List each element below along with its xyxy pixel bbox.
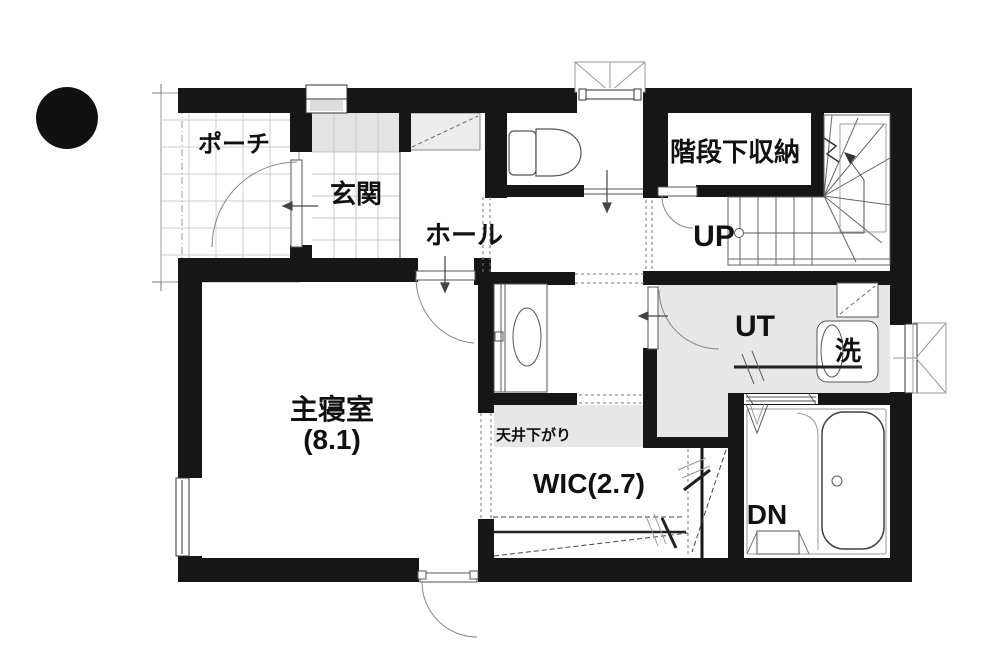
floor-plan-page: ポーチ 玄関 ホール 階段下収納 UP UT 洗 主寝室 (8.1) 天井下がり… [0, 0, 999, 666]
porch-label: ポーチ [198, 130, 270, 158]
shoe-cabinet [410, 113, 480, 150]
master-bedroom-label: 主寝室 [290, 393, 374, 425]
storage-door [658, 187, 697, 228]
floor-badge-letter: F [74, 106, 90, 136]
dn-label: DN [747, 499, 787, 530]
utility-label: UT [735, 310, 775, 343]
stair-start-post [735, 229, 744, 238]
bath-step [757, 531, 799, 554]
washbasin-vanity [494, 284, 547, 392]
laundry-label: 洗 [835, 336, 861, 366]
floor-badge: 1 F [36, 87, 98, 149]
floor-badge-number: 1 [46, 93, 72, 145]
toilet-sliding-door [584, 186, 643, 197]
ceiling-drop-label: 天井下がり [496, 426, 571, 444]
utility-corner-cabinet [837, 283, 878, 317]
entrance-label: 玄関 [330, 179, 382, 209]
window-top-center [575, 62, 645, 113]
bath-folding-door [746, 404, 768, 433]
bedroom-exterior-door [418, 558, 478, 637]
window-top-left [306, 85, 347, 113]
bathtub [822, 412, 884, 549]
porch-corner-ticks [152, 84, 161, 291]
toilet-fixture [509, 129, 581, 176]
bathroom-unit [746, 404, 886, 554]
up-label: UP [693, 220, 735, 253]
window-right-utility [890, 323, 946, 393]
wic-label: WIC(2.7) [533, 468, 645, 499]
hall-label: ホール [425, 220, 503, 250]
bath-sliding-door [744, 394, 818, 404]
utility-floor-extension [657, 393, 728, 437]
master-bedroom-area-label: (8.1) [303, 424, 361, 455]
wic-details [493, 450, 726, 556]
floor-plan: ポーチ 玄関 ホール 階段下収納 UP UT 洗 主寝室 (8.1) 天井下がり… [0, 0, 999, 666]
window-left-bedroom [176, 478, 202, 556]
under-stair-storage-label: 階段下収納 [670, 137, 800, 167]
